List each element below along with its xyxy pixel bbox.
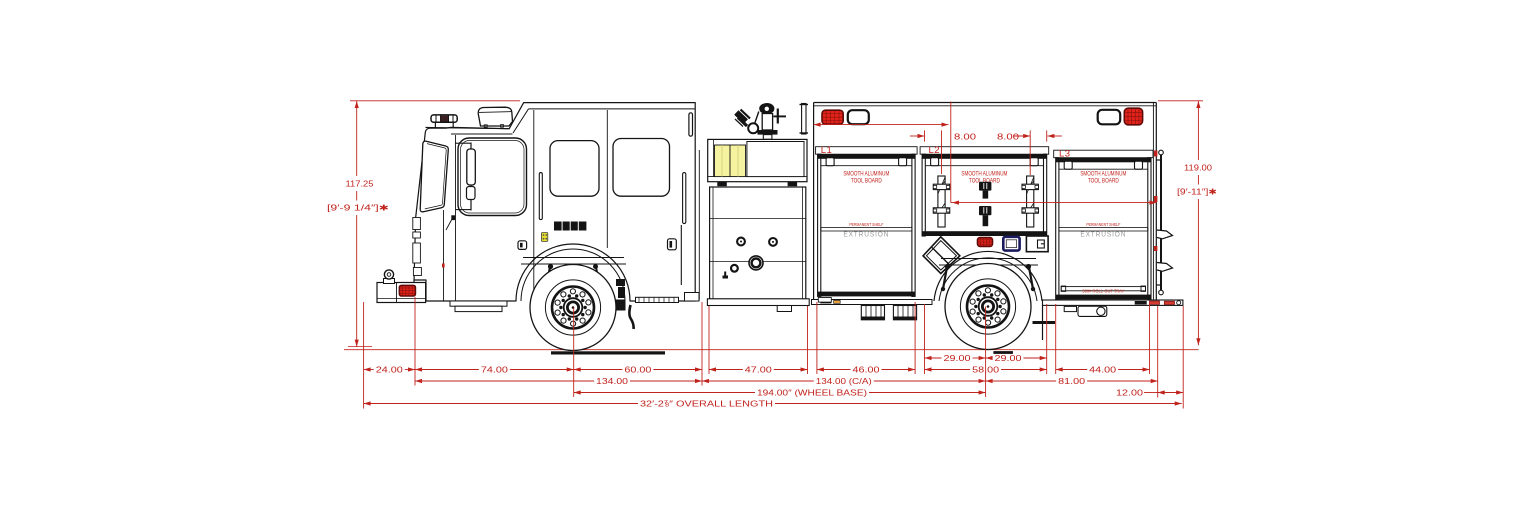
svg-text:47.00: 47.00 xyxy=(745,365,773,374)
svg-text:29.00: 29.00 xyxy=(944,354,972,363)
svg-text:74.00: 74.00 xyxy=(481,365,509,374)
svg-text:60.00: 60.00 xyxy=(624,365,652,374)
svg-text:44.00: 44.00 xyxy=(1089,365,1117,374)
svg-text:58.00: 58.00 xyxy=(972,365,1000,374)
svg-text:134.00: 134.00 xyxy=(596,377,629,386)
svg-text:SMOOTH ALUMINUM: SMOOTH ALUMINUM xyxy=(961,172,1007,178)
svg-text:117.25: 117.25 xyxy=(346,180,375,189)
svg-text:81.00: 81.00 xyxy=(1058,377,1086,386)
svg-text:46.00: 46.00 xyxy=(853,365,881,374)
svg-text:[9′-9 1/4″]✱: [9′-9 1/4″]✱ xyxy=(327,204,389,213)
svg-text:EXTRUSION: EXTRUSION xyxy=(843,230,889,239)
svg-text:500# ROLL-OUT TRAY: 500# ROLL-OUT TRAY xyxy=(1082,289,1124,294)
svg-text:24.00: 24.00 xyxy=(376,365,404,374)
svg-text:8.00: 8.00 xyxy=(954,131,976,141)
svg-text:PERMANENT SHELF: PERMANENT SHELF xyxy=(1086,222,1120,227)
svg-text:32′-278″ OVERALL LENGTH: 32′-278″ OVERALL LENGTH xyxy=(640,399,773,408)
svg-text:SMOOTH ALUMINUM: SMOOTH ALUMINUM xyxy=(843,172,889,178)
svg-text:134.00 (C/A): 134.00 (C/A) xyxy=(816,377,872,386)
svg-text:[9′-11″]✱: [9′-11″]✱ xyxy=(1177,188,1217,197)
svg-text:TOOL BOARD: TOOL BOARD xyxy=(851,179,883,185)
svg-text:L1: L1 xyxy=(821,145,833,156)
svg-text:TOOL BOARD: TOOL BOARD xyxy=(1088,179,1120,185)
svg-text:EXTRUSION: EXTRUSION xyxy=(1080,230,1126,239)
svg-text:12.00: 12.00 xyxy=(1116,388,1144,397)
svg-text:PERMANENT SHELF: PERMANENT SHELF xyxy=(849,222,883,227)
svg-text:L3: L3 xyxy=(1059,148,1071,159)
svg-text:8.00: 8.00 xyxy=(997,131,1019,141)
svg-text:119.00: 119.00 xyxy=(1184,164,1213,173)
svg-text:194.00″ (WHEEL BASE): 194.00″ (WHEEL BASE) xyxy=(757,388,867,397)
svg-text:29.00: 29.00 xyxy=(995,354,1023,363)
svg-text:SMOOTH ALUMINUM: SMOOTH ALUMINUM xyxy=(1080,172,1126,178)
svg-text:L2: L2 xyxy=(929,145,941,156)
